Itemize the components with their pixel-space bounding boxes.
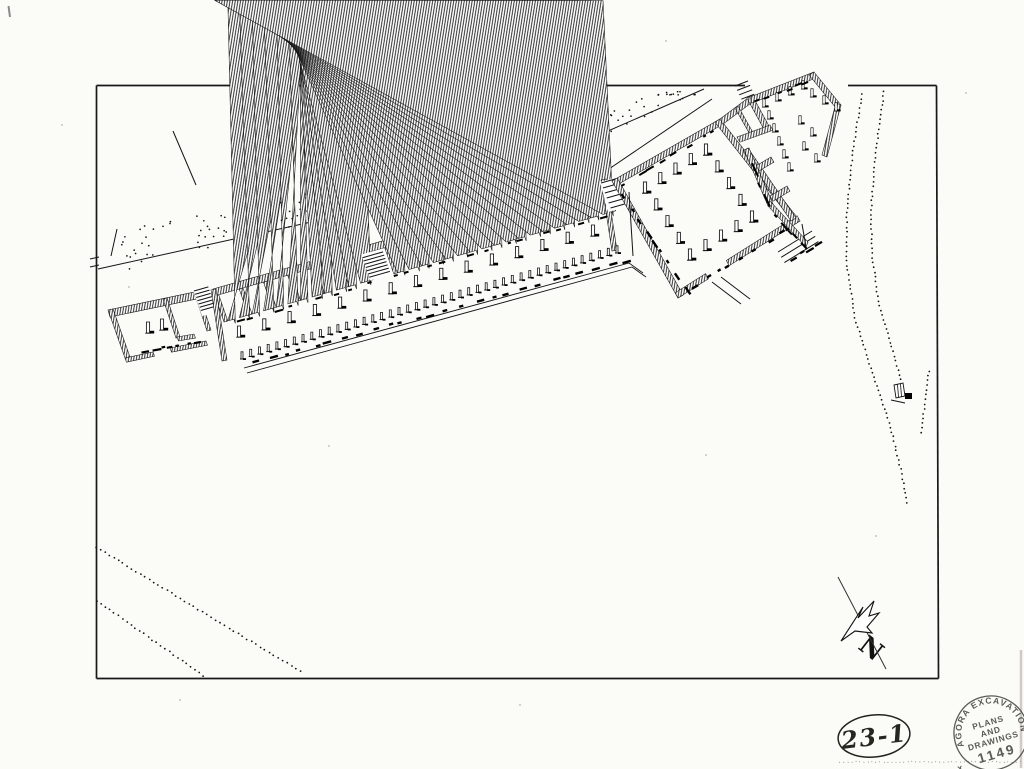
column (312, 304, 321, 316)
column (814, 154, 821, 163)
column (589, 253, 595, 261)
column (598, 251, 604, 259)
column (810, 89, 817, 98)
column (406, 305, 412, 313)
column (484, 283, 490, 291)
column (441, 295, 447, 303)
column (449, 293, 455, 301)
column (545, 266, 551, 274)
column (687, 249, 696, 261)
column (319, 330, 325, 338)
column (287, 312, 296, 324)
column (762, 99, 769, 108)
column (337, 297, 346, 309)
column (476, 285, 482, 293)
column (718, 230, 727, 242)
column (749, 211, 758, 223)
column (458, 290, 464, 298)
column (554, 263, 560, 271)
column (772, 124, 779, 133)
column (345, 322, 351, 330)
reconstruction-drawing: N 23-1 AGORA EXCAVATIONS PLANS AND DRAWI… (0, 0, 1024, 769)
column (563, 261, 569, 269)
column (336, 325, 342, 333)
column (292, 337, 298, 345)
column (502, 278, 508, 286)
column (787, 163, 794, 172)
north-label: N (853, 630, 889, 667)
column (688, 154, 697, 166)
column (397, 307, 403, 315)
column (810, 128, 817, 137)
column (519, 273, 525, 281)
stamp-check-mark: x (956, 762, 964, 769)
column (654, 199, 663, 211)
column (159, 319, 168, 331)
column (734, 221, 743, 233)
column (642, 182, 651, 194)
column (284, 340, 290, 348)
column (540, 239, 549, 251)
column (353, 320, 359, 328)
column (467, 288, 473, 296)
column (362, 317, 368, 325)
column (275, 342, 281, 350)
column (388, 283, 397, 295)
column (327, 327, 333, 335)
column (738, 194, 747, 206)
column (673, 163, 682, 175)
column (703, 240, 712, 252)
north-arrow: N (838, 577, 889, 669)
column (606, 248, 612, 256)
column (257, 347, 263, 355)
southwest-dotted-paths (95, 547, 301, 677)
column (310, 332, 316, 340)
column (802, 142, 809, 151)
column (249, 349, 255, 357)
column (510, 275, 516, 283)
excavations-stamp: AGORA EXCAVATIONS PLANS AND DRAWINGS 114… (940, 686, 1024, 769)
column (514, 247, 523, 259)
south-stoa (193, 0, 646, 373)
column (363, 290, 372, 302)
column (262, 319, 271, 331)
column (782, 150, 789, 159)
column (777, 137, 784, 146)
column (145, 322, 154, 334)
column (240, 352, 246, 360)
column (798, 116, 805, 125)
column (580, 256, 586, 264)
column (493, 280, 499, 288)
column (266, 344, 272, 352)
column (380, 312, 386, 320)
column (414, 303, 420, 311)
column (767, 111, 774, 120)
column (715, 161, 724, 173)
column (665, 216, 674, 228)
column (371, 315, 377, 323)
column (571, 258, 577, 266)
column (439, 268, 448, 280)
east-dotted-paths (845, 91, 930, 504)
column (489, 254, 498, 266)
column (676, 232, 685, 244)
column (423, 300, 429, 308)
drawing-number: 23-1 (836, 711, 912, 760)
column (432, 298, 438, 306)
column (388, 310, 394, 318)
column (301, 335, 307, 343)
column (565, 232, 574, 244)
column (537, 268, 543, 276)
scanned-drawing-page: N 23-1 AGORA EXCAVATIONS PLANS AND DRAWI… (0, 0, 1024, 769)
column (464, 261, 473, 273)
column (528, 271, 534, 279)
column (658, 173, 667, 185)
column (726, 178, 735, 190)
column (615, 246, 621, 254)
west-building (108, 289, 211, 362)
peristyle-building (612, 95, 822, 304)
column (590, 225, 599, 237)
column (413, 276, 422, 288)
column (236, 326, 245, 338)
column (703, 144, 712, 156)
